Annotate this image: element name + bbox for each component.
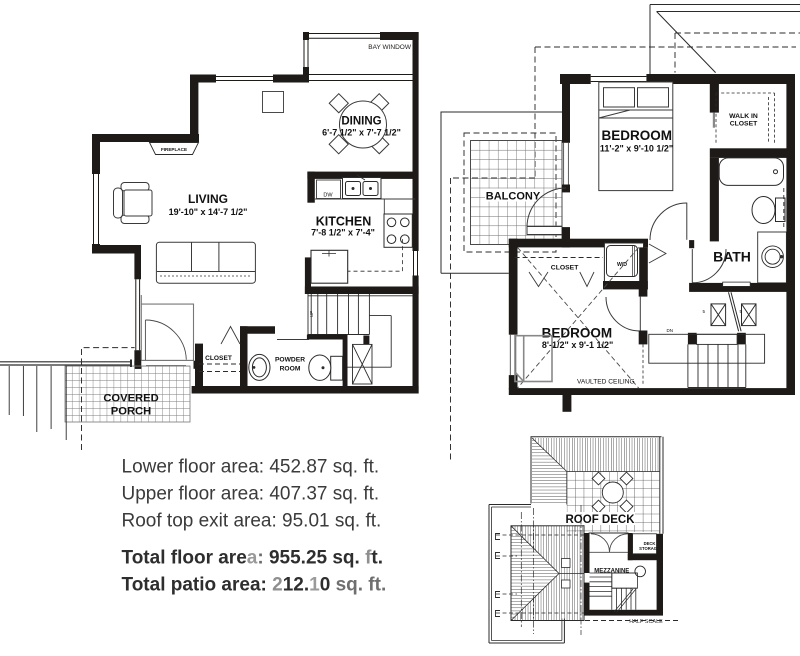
svg-text:Roof top exit area: 95.01 sq.: Roof top exit area: 95.01 sq. ft. [122,511,382,532]
svg-text:POWDER: POWDER [275,357,305,364]
svg-text:COVERED: COVERED [103,393,158,405]
svg-text:CLOSET: CLOSET [205,355,232,362]
svg-text:DINING: DINING [341,116,381,128]
svg-text:Total patio area: 212.10 sq. f: Total patio area: 212.10 sq. ft. [122,575,387,596]
svg-text:Lower floor area: 452.87 sq. f: Lower floor area: 452.87 sq. ft. [122,457,380,478]
svg-text:UP: UP [309,311,314,317]
svg-text:WALK IN: WALK IN [729,113,758,120]
svg-text:BAY WINDOW: BAY WINDOW [368,44,412,51]
svg-text:19'-10" x 14'-7 1/2": 19'-10" x 14'-7 1/2" [169,207,248,217]
svg-text:BALCONY: BALCONY [486,191,541,203]
svg-text:HALF SCALE: HALF SCALE [629,619,663,625]
svg-text:PORCH: PORCH [111,406,151,418]
svg-text:CLOSET: CLOSET [730,121,758,128]
svg-text:11'-2" x 9'-10 1/2": 11'-2" x 9'-10 1/2" [600,144,673,154]
svg-text:FIREPLACE: FIREPLACE [161,147,187,152]
svg-text:DN: DN [667,328,674,333]
svg-text:ROOM: ROOM [280,366,301,373]
svg-text:Total floor area: 955.25 sq. f: Total floor area: 955.25 sq. ft. [122,548,384,569]
svg-text:7'-8 1/2" x 7'-4": 7'-8 1/2" x 7'-4" [311,228,375,238]
svg-text:BATH: BATH [713,249,751,265]
svg-text:VAULTED CEILING: VAULTED CEILING [577,379,635,386]
svg-text:KITCHEN: KITCHEN [316,215,372,229]
svg-text:6'-7 1/2" x 7'-7 1/2": 6'-7 1/2" x 7'-7 1/2" [322,128,401,138]
svg-text:LIVING: LIVING [188,192,228,206]
svg-text:CLOSET: CLOSET [551,265,579,272]
svg-text:DW: DW [323,193,333,199]
svg-text:BEDROOM: BEDROOM [602,128,673,143]
svg-text:ROOF DECK: ROOF DECK [566,514,636,526]
svg-text:Upper floor area: 407.37 sq. f: Upper floor area: 407.37 sq. ft. [122,484,380,505]
